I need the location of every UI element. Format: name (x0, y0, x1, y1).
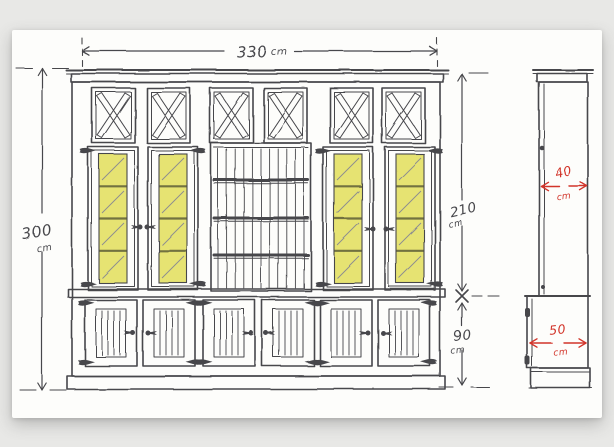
dim-total-height: 300 cm (16, 68, 68, 390)
door-handle (145, 225, 157, 230)
cabinet-sketch-drawing: 330 cm 300 cm (12, 30, 602, 418)
dim-lower-depth: 50 cm (530, 321, 586, 359)
hinge (313, 359, 330, 364)
section-divider-mark (456, 290, 468, 302)
side-door-knob (541, 285, 545, 289)
glass-door (323, 147, 373, 290)
dim-total-width: 330 cm (82, 38, 437, 70)
door-handle (131, 225, 143, 230)
transom-door (147, 88, 190, 143)
dim-upper-section-unit: cm (447, 218, 463, 231)
glass-door (385, 147, 435, 290)
cornice (66, 70, 448, 82)
dim-height-value: 300 (21, 221, 54, 244)
transom-door (330, 88, 373, 143)
shelf-unit (211, 143, 311, 291)
transom-door (264, 88, 307, 143)
hinge (190, 281, 207, 286)
transom-door (92, 88, 135, 143)
dim-lower-depth-unit: cm (553, 347, 569, 358)
hinge (190, 148, 207, 153)
door-handle (384, 227, 396, 232)
hinge (80, 281, 97, 286)
side-cornice (533, 70, 593, 82)
transom-door (382, 88, 425, 143)
dim-lower-depth-value: 50 (548, 321, 566, 338)
hinge (421, 359, 438, 364)
hinge (78, 359, 95, 364)
lower-door-row (85, 300, 430, 366)
hinge (525, 356, 530, 365)
dim-lower-section: 90 cm (439, 303, 489, 387)
hinge (315, 148, 332, 153)
transom-row (92, 88, 425, 143)
side-plinth (529, 368, 592, 388)
dim-height-unit: cm (36, 242, 53, 256)
plinth (67, 376, 445, 389)
hinge (421, 300, 438, 305)
dim-upper-depth: 40 cm (541, 163, 587, 203)
dim-lower-section-unit: cm (450, 345, 466, 356)
hinge (427, 281, 444, 286)
hinge (315, 281, 332, 286)
dim-width-unit: cm (270, 46, 287, 58)
hinge (525, 308, 530, 317)
glass-door (148, 147, 198, 290)
hinge (80, 148, 97, 153)
door-knob (381, 331, 393, 336)
hinge (196, 359, 213, 364)
sketch-paper: 330 cm 300 cm (12, 30, 602, 418)
side-door-knob (540, 146, 545, 151)
hinge (427, 148, 444, 153)
hinge (78, 300, 95, 305)
dim-upper-section: 210 cm (447, 73, 499, 302)
glass-door (88, 147, 138, 290)
hinge (313, 300, 330, 305)
dim-upper-section-value: 210 (448, 199, 478, 220)
door-knob (146, 331, 158, 336)
dim-upper-depth-unit: cm (556, 191, 572, 202)
sketch-page: { "sketch": { "front_elevation": { "widt… (0, 0, 614, 447)
transom-door (210, 88, 253, 143)
dim-width-value: 330 (237, 42, 268, 61)
dim-upper-depth-value: 40 (554, 163, 573, 181)
side-elevation: 40 cm 50 cm (525, 70, 593, 388)
dim-lower-section-value: 90 (453, 327, 473, 345)
front-elevation (66, 70, 448, 389)
hinge (196, 300, 213, 305)
